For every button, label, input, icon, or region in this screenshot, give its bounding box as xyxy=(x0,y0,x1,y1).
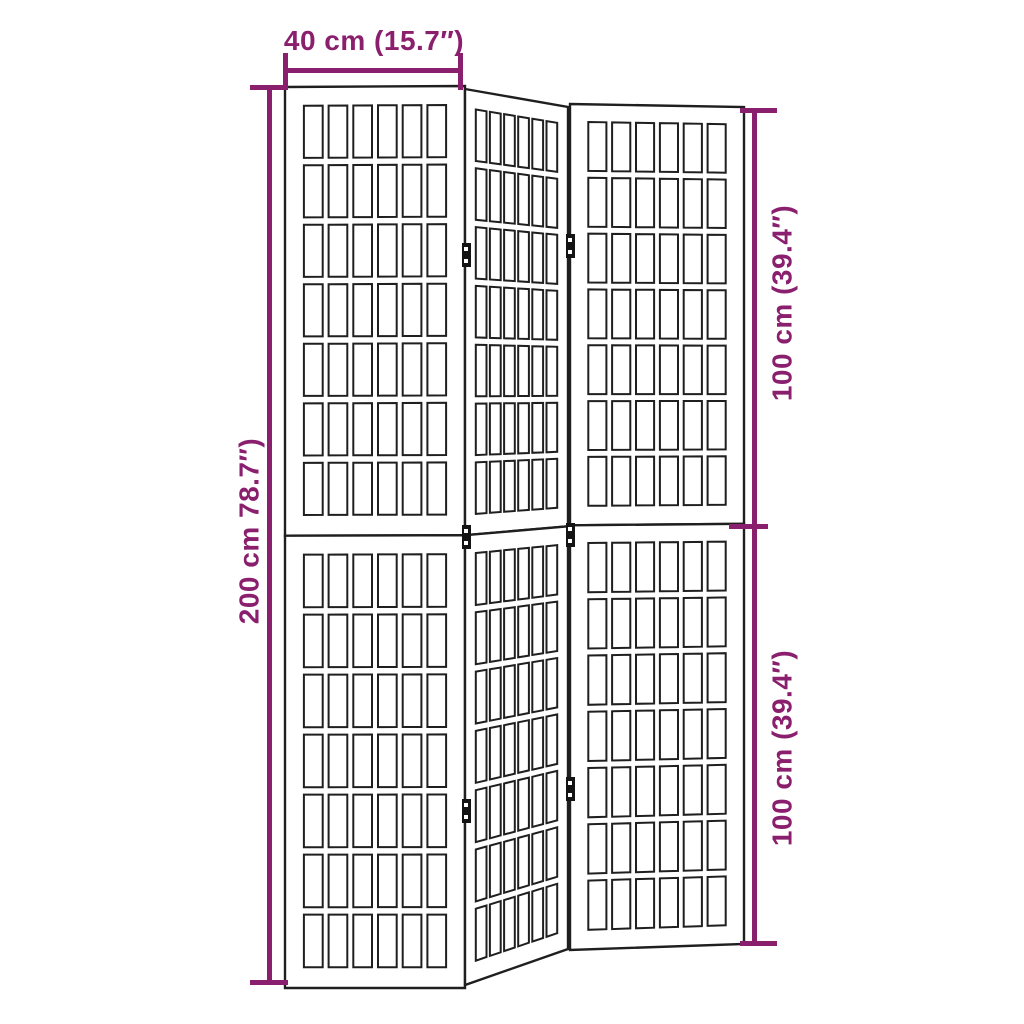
lattice-cell xyxy=(476,611,487,664)
lattice-cell xyxy=(532,233,543,283)
lattice-cell xyxy=(476,227,487,279)
lattice-cell xyxy=(518,778,529,831)
lattice-cell xyxy=(427,614,446,667)
lattice-cell xyxy=(353,344,372,396)
lattice-cell xyxy=(518,289,529,340)
lattice-cell xyxy=(708,290,726,339)
lattice-cell xyxy=(378,463,397,515)
lattice-cell xyxy=(660,542,678,591)
lattice-cell xyxy=(490,170,501,222)
lattice-cell xyxy=(612,345,630,394)
lattice-cell xyxy=(403,855,422,908)
lattice-cell xyxy=(504,839,515,893)
lattice-cell xyxy=(684,124,702,173)
lattice-cell xyxy=(708,821,726,870)
lattice-cell xyxy=(378,105,397,157)
lattice-cell xyxy=(427,734,446,787)
lattice-cell xyxy=(490,901,501,956)
lattice-cell xyxy=(588,234,606,283)
lattice-cell xyxy=(403,795,422,848)
lattice-cell xyxy=(427,165,446,217)
lattice-cell xyxy=(403,915,422,968)
lattice-cell xyxy=(636,290,654,339)
left-dimension-top-tick xyxy=(250,85,288,90)
lattice-cell xyxy=(353,735,372,788)
left-panel xyxy=(285,86,465,988)
lattice-cell xyxy=(378,795,397,848)
lattice-cell xyxy=(532,888,543,942)
middle-panel xyxy=(465,89,568,985)
right-bottom-height-label: 100 cm (39.4″) xyxy=(767,650,798,846)
lattice-cell xyxy=(547,771,558,823)
lattice-cell xyxy=(504,403,515,454)
lattice-cell xyxy=(329,284,348,336)
lattice-cell xyxy=(547,403,558,453)
hinge xyxy=(566,523,575,547)
lattice-cell xyxy=(378,735,397,788)
lattice-cell xyxy=(476,462,487,514)
lattice-cell xyxy=(588,711,606,761)
lattice-cell xyxy=(518,835,529,889)
lattice-cell xyxy=(378,224,397,276)
lattice-cell xyxy=(304,915,323,968)
lattice-cell xyxy=(490,461,501,513)
right-dimension-top-tick xyxy=(740,108,777,113)
left-dimension-line xyxy=(267,87,272,985)
lattice-cell xyxy=(636,767,654,817)
lattice-cell xyxy=(518,605,529,657)
lattice-cell xyxy=(518,892,529,946)
lattice-cell xyxy=(612,711,630,761)
lattice-cell xyxy=(588,122,606,171)
lattice-cell xyxy=(353,463,372,515)
lattice-cell xyxy=(636,234,654,283)
lattice-cell xyxy=(490,229,501,281)
lattice-cell xyxy=(403,554,422,607)
lattice-cell xyxy=(636,178,654,227)
lattice-cell xyxy=(427,915,446,968)
lattice-cell xyxy=(504,781,515,835)
lattice-cell xyxy=(636,711,654,760)
lattice-cell xyxy=(612,879,630,929)
lattice-cell xyxy=(518,117,529,169)
lattice-cell xyxy=(476,788,487,843)
lattice-cell xyxy=(378,165,397,217)
lattice-cell xyxy=(403,105,422,157)
lattice-cell xyxy=(684,765,702,814)
lattice-cell xyxy=(427,462,446,514)
lattice-cell xyxy=(490,287,501,338)
lattice-cell xyxy=(304,555,323,608)
diagram-canvas: 40 cm (15.7″) 200 cm 78.7″) 100 cm (39.4… xyxy=(0,0,1024,1024)
left-height-dimension: 200 cm 78.7″) xyxy=(234,85,289,985)
lattice-cell xyxy=(476,168,487,221)
lattice-cell xyxy=(612,401,630,450)
lattice-cell xyxy=(684,235,702,284)
right-top-height-label: 100 cm (39.4″) xyxy=(767,205,798,401)
lattice-cell xyxy=(427,674,446,727)
lattice-cell xyxy=(708,179,726,228)
lattice-cell xyxy=(612,767,630,817)
lattice-cell xyxy=(636,598,654,647)
lattice-cell xyxy=(660,345,678,394)
lattice-cell xyxy=(708,401,726,450)
lattice-cell xyxy=(490,551,501,604)
lattice-cell xyxy=(636,542,654,591)
lattice-cell xyxy=(329,165,348,217)
lattice-cell xyxy=(427,795,446,848)
lattice-cell xyxy=(660,179,678,228)
lattice-cell xyxy=(476,345,487,396)
right-panel xyxy=(570,104,744,950)
lattice-cell xyxy=(518,720,529,773)
lattice-cell xyxy=(708,346,726,395)
lattice-cell xyxy=(547,121,558,172)
lattice-cell xyxy=(490,345,501,396)
lattice-cell xyxy=(532,717,543,769)
lattice-cell xyxy=(532,603,543,655)
lattice-cell xyxy=(329,735,348,788)
lattice-cell xyxy=(504,172,515,224)
lattice-cell xyxy=(353,675,372,728)
top-dimension-left-tick xyxy=(283,53,288,90)
lattice-cell xyxy=(504,461,515,512)
lattice-cell xyxy=(684,456,702,505)
lattice-cell xyxy=(612,823,630,873)
lattice-cell xyxy=(612,599,630,648)
lattice-cell xyxy=(403,463,422,515)
lattice-cell xyxy=(476,906,487,961)
lattice-cell xyxy=(329,795,348,848)
room-divider-panels xyxy=(285,86,744,988)
hinge xyxy=(462,243,471,267)
lattice-cell xyxy=(588,599,606,649)
lattice-cell xyxy=(378,344,397,396)
lattice-cell xyxy=(490,843,501,897)
lattice-cell xyxy=(612,122,630,171)
lattice-cell xyxy=(378,915,397,968)
lattice-cell xyxy=(636,879,654,929)
product-dimension-diagram: 40 cm (15.7″) 200 cm 78.7″) 100 cm (39.4… xyxy=(0,0,1024,1024)
lattice-cell xyxy=(532,346,543,396)
lattice-cell xyxy=(427,855,446,908)
lattice-cell xyxy=(504,230,515,281)
lattice-cell xyxy=(588,401,606,450)
lattice-cell xyxy=(518,231,529,282)
lattice-cell xyxy=(518,460,529,511)
lattice-cell xyxy=(532,176,543,227)
lattice-cell xyxy=(532,774,543,827)
lattice-cell xyxy=(684,598,702,647)
lattice-cell xyxy=(684,290,702,339)
lattice-cell xyxy=(547,714,558,766)
left-dimension-bottom-tick xyxy=(250,980,288,985)
lattice-cell xyxy=(403,165,422,217)
lattice-cell xyxy=(708,235,726,284)
lattice-cell xyxy=(547,602,558,653)
lattice-cell xyxy=(378,675,397,728)
lattice-cell xyxy=(684,654,702,703)
lattice-cell xyxy=(612,655,630,705)
lattice-cell xyxy=(353,284,372,336)
lattice-cell xyxy=(612,178,630,227)
lattice-cell xyxy=(660,822,678,872)
lattice-cell xyxy=(490,726,501,780)
lattice-cell xyxy=(329,855,348,908)
lattice-cell xyxy=(636,457,654,506)
lattice-cell xyxy=(588,768,606,818)
lattice-cell xyxy=(636,123,654,172)
lattice-cell xyxy=(532,831,543,884)
lattice-cell xyxy=(547,658,558,710)
lattice-cell xyxy=(504,346,515,397)
lattice-cell xyxy=(684,542,702,591)
lattice-cell xyxy=(476,670,487,724)
lattice-cell xyxy=(427,284,446,336)
lattice-cell xyxy=(403,403,422,455)
lattice-cell xyxy=(708,597,726,646)
lattice-cell xyxy=(518,174,529,225)
lattice-cell xyxy=(660,457,678,506)
lattice-cell xyxy=(304,165,323,217)
lattice-cell xyxy=(684,401,702,450)
lattice-cell xyxy=(403,735,422,788)
lattice-cell xyxy=(304,615,323,668)
lattice-cell xyxy=(547,545,558,596)
lattice-cell xyxy=(588,655,606,705)
lattice-cell xyxy=(490,784,501,838)
lattice-cell xyxy=(588,543,606,592)
lattice-cell xyxy=(708,709,726,758)
lattice-cell xyxy=(518,346,529,396)
lattice-cell xyxy=(476,404,487,456)
lattice-cell xyxy=(532,459,543,509)
top-width-label: 40 cm (15.7″) xyxy=(284,25,464,56)
lattice-cell xyxy=(684,710,702,759)
lattice-cell xyxy=(329,555,348,608)
lattice-cell xyxy=(532,660,543,712)
lattice-cell xyxy=(636,345,654,394)
lattice-cell xyxy=(476,552,487,605)
lattice-cell xyxy=(304,463,323,515)
lattice-cell xyxy=(353,915,372,968)
lattice-cell xyxy=(636,823,654,873)
lattice-cell xyxy=(660,234,678,283)
lattice-cell xyxy=(476,286,487,338)
hinge xyxy=(566,777,575,801)
lattice-cell xyxy=(547,347,558,396)
lattice-cell xyxy=(588,880,606,930)
top-width-dimension: 40 cm (15.7″) xyxy=(283,25,464,90)
lattice-cell xyxy=(476,847,487,902)
lattice-cell xyxy=(636,654,654,703)
lattice-cell xyxy=(304,735,323,788)
lattice-cell xyxy=(708,542,726,591)
lattice-cell xyxy=(490,112,501,165)
lattice-cell xyxy=(304,344,323,396)
top-dimension-right-tick xyxy=(458,53,463,90)
lattice-cell xyxy=(329,675,348,728)
lattice-cell xyxy=(427,224,446,276)
lattice-cell xyxy=(708,765,726,814)
left-height-label: 200 cm 78.7″) xyxy=(234,438,265,624)
lattice-cell xyxy=(532,289,543,339)
lattice-cell xyxy=(403,284,422,336)
lattice-cell xyxy=(612,543,630,592)
lattice-cell xyxy=(378,554,397,607)
lattice-cell xyxy=(504,288,515,339)
lattice-cell xyxy=(304,225,323,277)
lattice-cell xyxy=(304,675,323,728)
lattice-cell xyxy=(588,457,606,506)
lattice-cell xyxy=(547,290,558,340)
lattice-cell xyxy=(329,915,348,968)
lattice-cell xyxy=(547,459,558,509)
lattice-cell xyxy=(504,607,515,659)
lattice-cell xyxy=(684,821,702,870)
lattice-cell xyxy=(427,554,446,607)
lattice-cell xyxy=(378,403,397,455)
lattice-cell xyxy=(504,114,515,166)
lattice-cell xyxy=(588,345,606,394)
lattice-cell xyxy=(403,224,422,276)
hinge xyxy=(462,525,471,549)
lattice-cell xyxy=(588,289,606,338)
lattice-cell xyxy=(660,766,678,816)
lattice-cell xyxy=(660,878,678,928)
lattice-cell xyxy=(588,824,606,874)
lattice-cell xyxy=(304,106,323,158)
lattice-cell xyxy=(612,457,630,506)
lattice-cell xyxy=(378,284,397,336)
lattice-cell xyxy=(378,855,397,908)
lattice-cell xyxy=(490,609,501,662)
lattice-cell xyxy=(353,225,372,277)
lattice-cell xyxy=(504,665,515,718)
lattice-cell xyxy=(636,401,654,450)
hinge xyxy=(462,799,471,823)
lattice-cell xyxy=(684,346,702,395)
lattice-cell xyxy=(518,403,529,453)
lattice-cell xyxy=(684,179,702,228)
lattice-cell xyxy=(684,877,702,927)
lattice-cell xyxy=(708,124,726,173)
lattice-cell xyxy=(476,110,487,163)
lattice-cell xyxy=(490,668,501,721)
lattice-cell xyxy=(353,615,372,668)
lattice-cell xyxy=(547,177,558,228)
lattice-cell xyxy=(329,344,348,396)
lattice-cell xyxy=(708,653,726,702)
hinge xyxy=(566,234,575,258)
lattice-cell xyxy=(403,614,422,667)
lattice-cell xyxy=(490,403,501,454)
lattice-cell xyxy=(518,663,529,715)
lattice-cell xyxy=(660,598,678,647)
lattice-cell xyxy=(304,403,323,455)
lattice-cell xyxy=(547,234,558,284)
lattice-cell xyxy=(329,403,348,455)
lattice-cell xyxy=(504,897,515,951)
lattice-cell xyxy=(378,614,397,667)
lattice-cell xyxy=(660,290,678,339)
lattice-cell xyxy=(353,165,372,217)
lattice-cell xyxy=(660,401,678,450)
lattice-cell xyxy=(708,876,726,926)
lattice-cell xyxy=(304,855,323,908)
lattice-cell xyxy=(353,105,372,157)
right-dimension-middle-tick xyxy=(729,524,768,529)
lattice-cell xyxy=(504,723,515,776)
lattice-cell xyxy=(353,555,372,608)
lattice-cell xyxy=(612,234,630,283)
lattice-cell xyxy=(427,403,446,455)
lattice-cell xyxy=(660,654,678,703)
right-dimension-bottom-tick xyxy=(740,941,777,946)
lattice-cell xyxy=(532,403,543,453)
lattice-cell xyxy=(476,729,487,783)
lattice-cell xyxy=(329,615,348,668)
lattice-cell xyxy=(304,795,323,848)
lattice-cell xyxy=(403,343,422,395)
lattice-cell xyxy=(518,548,529,600)
lattice-cell xyxy=(547,827,558,880)
lattice-cell xyxy=(353,403,372,455)
lattice-cell xyxy=(532,119,543,170)
lattice-cell xyxy=(588,178,606,227)
top-dimension-line xyxy=(285,68,461,73)
lattice-cell xyxy=(532,547,543,598)
lattice-cell xyxy=(547,884,558,937)
lattice-cell xyxy=(427,343,446,395)
lattice-cell xyxy=(504,549,515,601)
lattice-cell xyxy=(353,795,372,848)
lattice-cell xyxy=(329,106,348,158)
lattice-cell xyxy=(353,855,372,908)
lattice-cell xyxy=(329,225,348,277)
lattice-cell xyxy=(329,463,348,515)
lattice-cell xyxy=(708,456,726,505)
lattice-cell xyxy=(427,105,446,157)
lattice-cell xyxy=(304,284,323,336)
lattice-cell xyxy=(612,290,630,339)
lattice-cell xyxy=(660,710,678,759)
lattice-cell xyxy=(660,123,678,172)
lattice-cell xyxy=(403,674,422,727)
